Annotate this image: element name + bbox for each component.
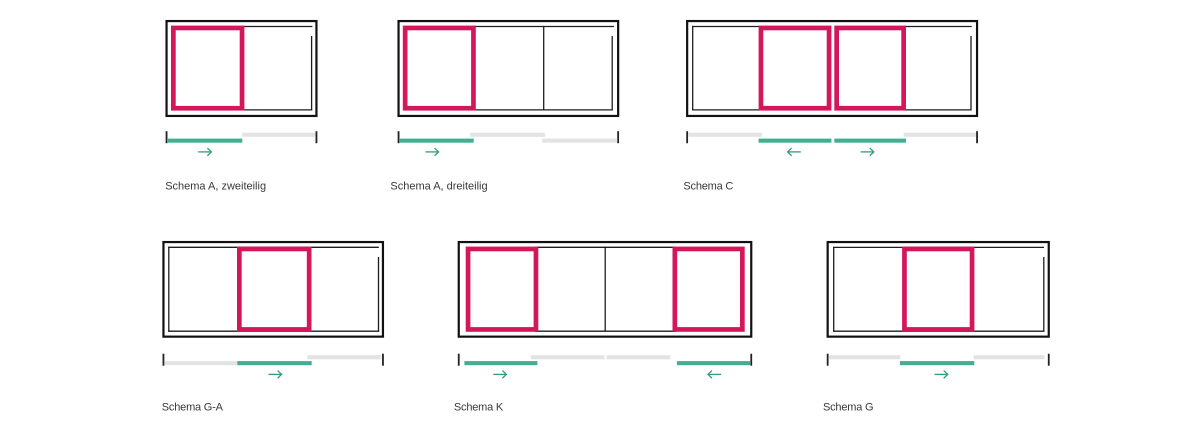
svg-text:Schema K: Schema K <box>454 402 504 414</box>
svg-text:Schema C: Schema C <box>683 180 733 192</box>
svg-text:Schema G-A: Schema G-A <box>162 402 224 414</box>
svg-text:Schema A, dreiteilig: Schema A, dreiteilig <box>390 180 487 192</box>
svg-text:Schema G: Schema G <box>823 402 873 414</box>
svg-text:Schema A, zweiteilig: Schema A, zweiteilig <box>165 180 266 192</box>
